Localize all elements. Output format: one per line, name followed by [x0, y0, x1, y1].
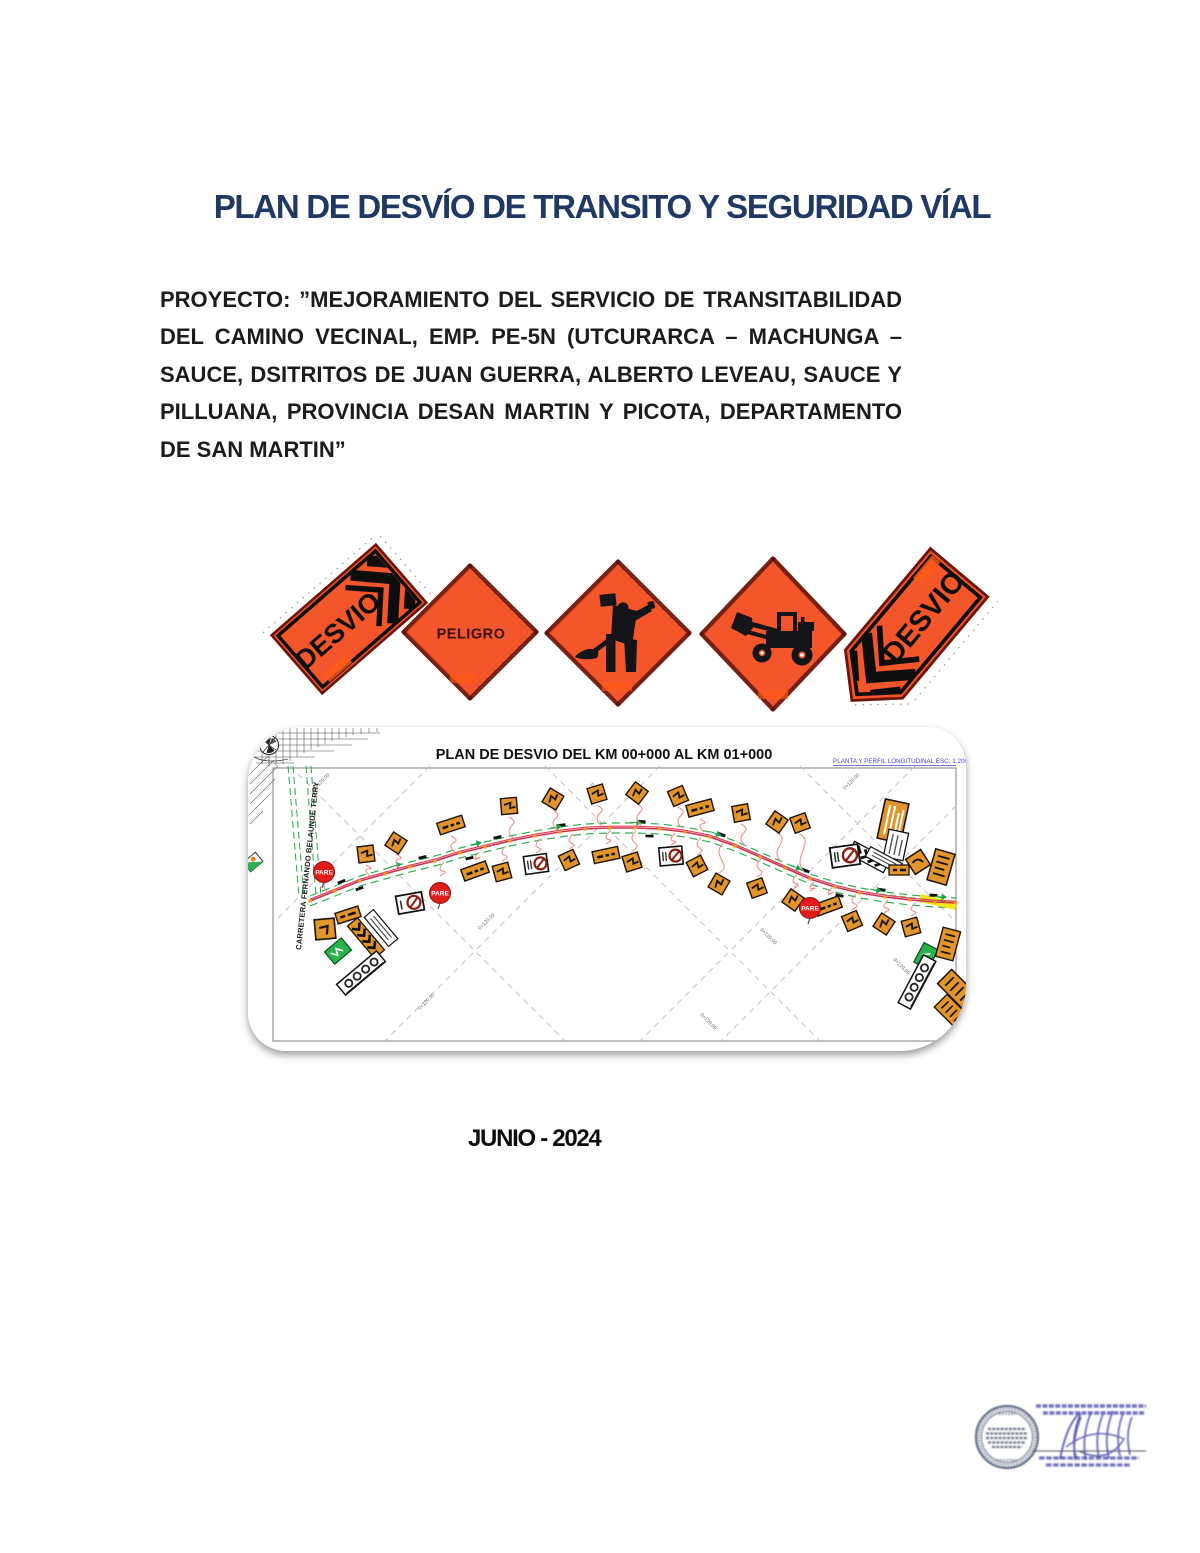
svg-text:PARE: PARE	[315, 870, 333, 877]
svg-text:PLAN DE DESVIO DEL KM 00+000: PLAN DE DESVIO DEL KM 00+000 AL KM 01+00…	[436, 747, 773, 763]
svg-text:PARE: PARE	[431, 891, 449, 898]
svg-text:PARE: PARE	[801, 906, 819, 913]
svg-text:PLANTA Y PERFIL LONGITUDINAL E: PLANTA Y PERFIL LONGITUDINAL ESC: 1:2000	[833, 758, 972, 765]
